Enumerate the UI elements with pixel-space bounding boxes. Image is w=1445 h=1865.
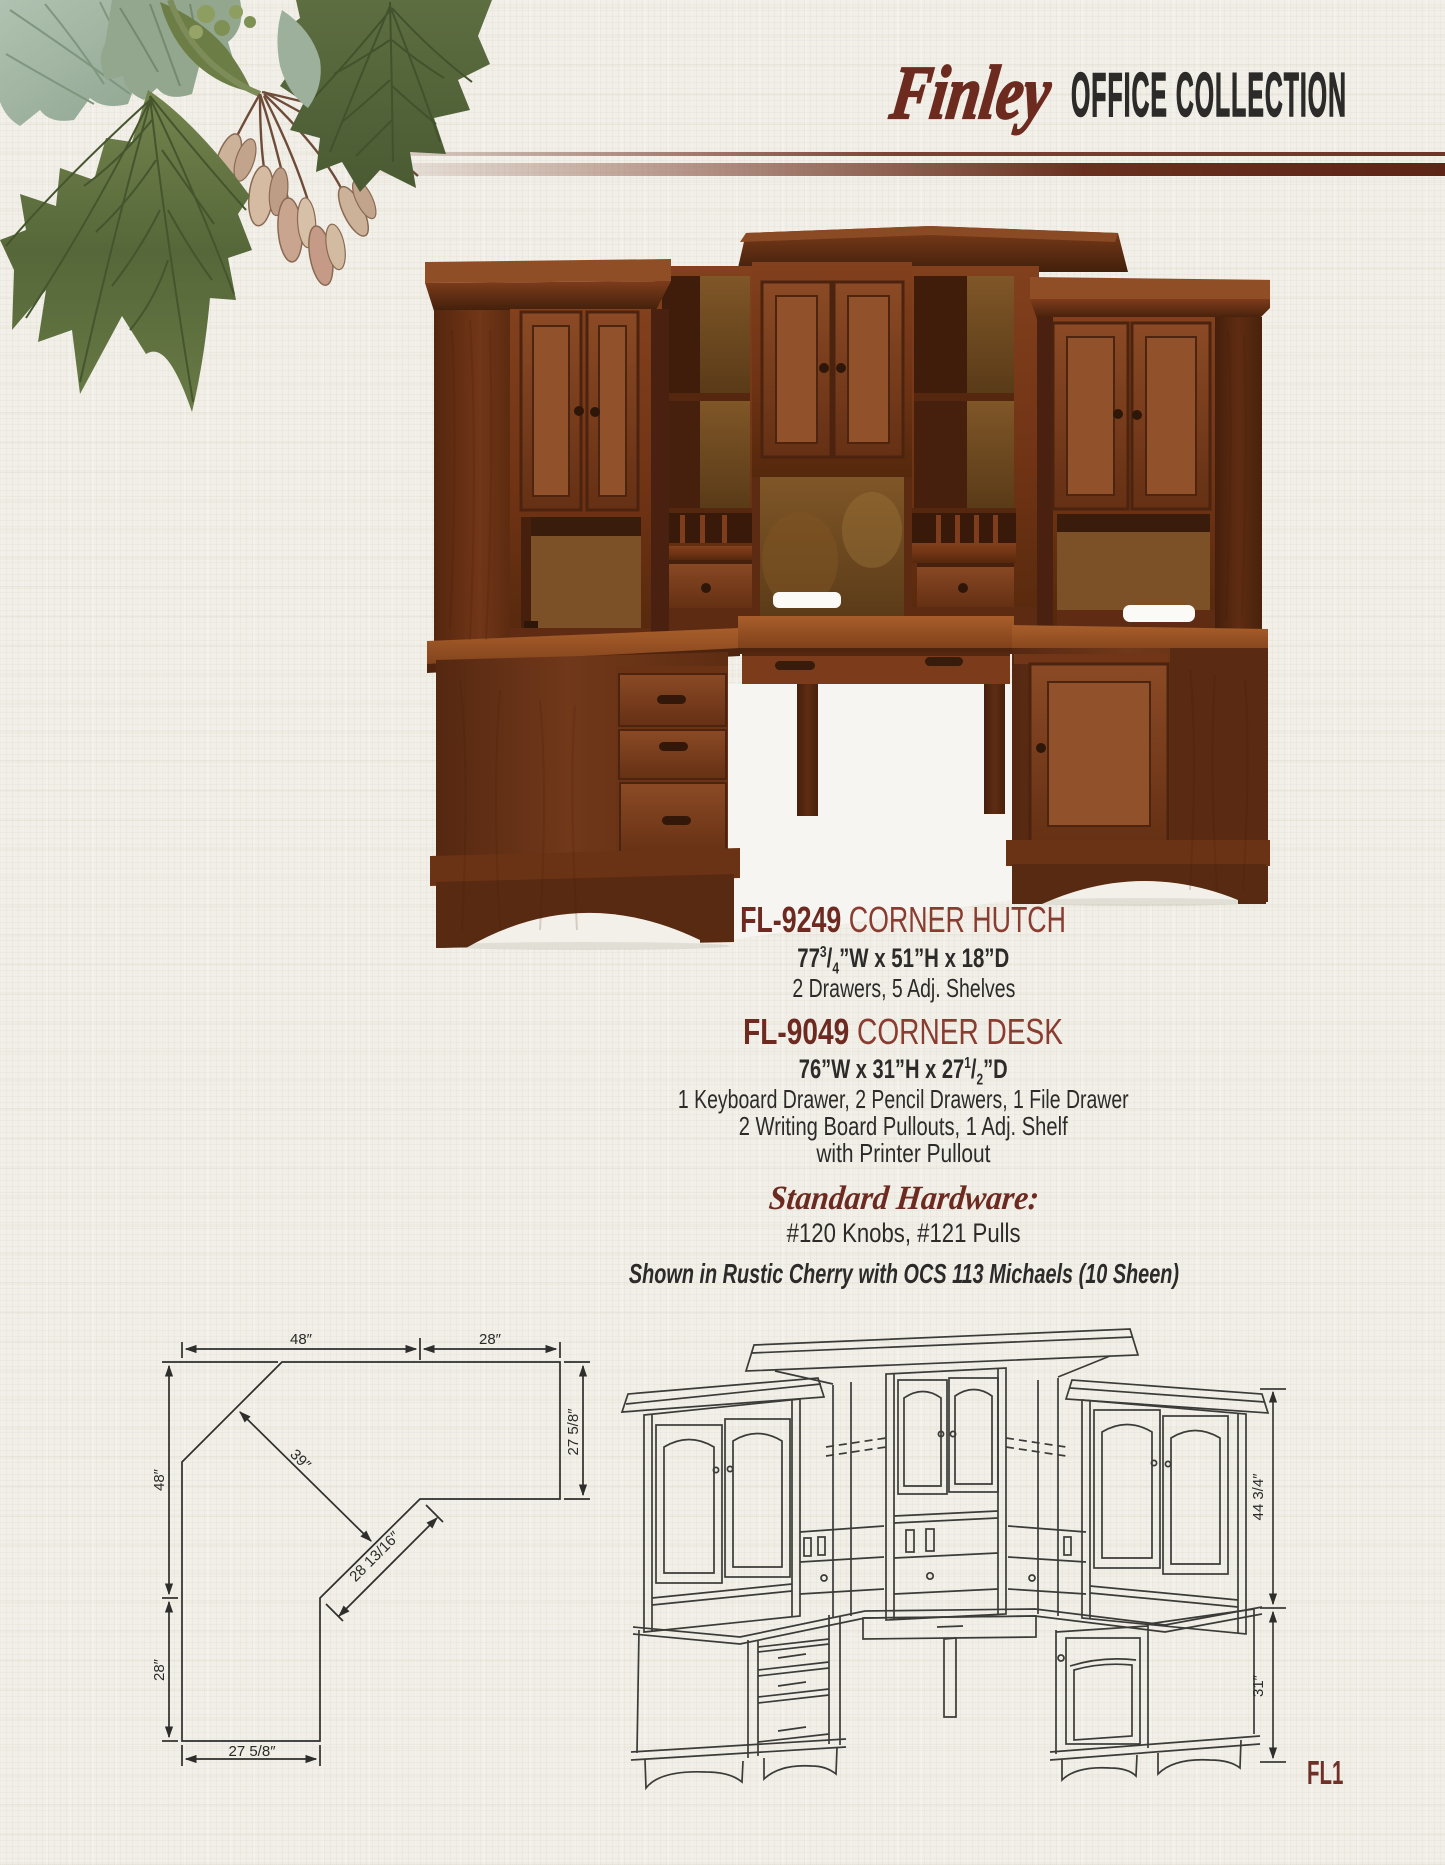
svg-text:28 13/16″: 28 13/16″ bbox=[346, 1528, 404, 1586]
svg-text:48″: 48″ bbox=[290, 1331, 313, 1348]
svg-text:44 3/4″: 44 3/4″ bbox=[1250, 1473, 1267, 1521]
svg-text:27 5/8″: 27 5/8″ bbox=[228, 1743, 276, 1760]
svg-text:39″: 39″ bbox=[286, 1446, 314, 1474]
svg-text:31″: 31″ bbox=[1250, 1674, 1267, 1697]
svg-text:28″: 28″ bbox=[151, 1658, 168, 1681]
svg-text:28″: 28″ bbox=[479, 1331, 502, 1348]
svg-text:48″: 48″ bbox=[151, 1468, 168, 1491]
svg-text:27 5/8″: 27 5/8″ bbox=[565, 1408, 582, 1456]
